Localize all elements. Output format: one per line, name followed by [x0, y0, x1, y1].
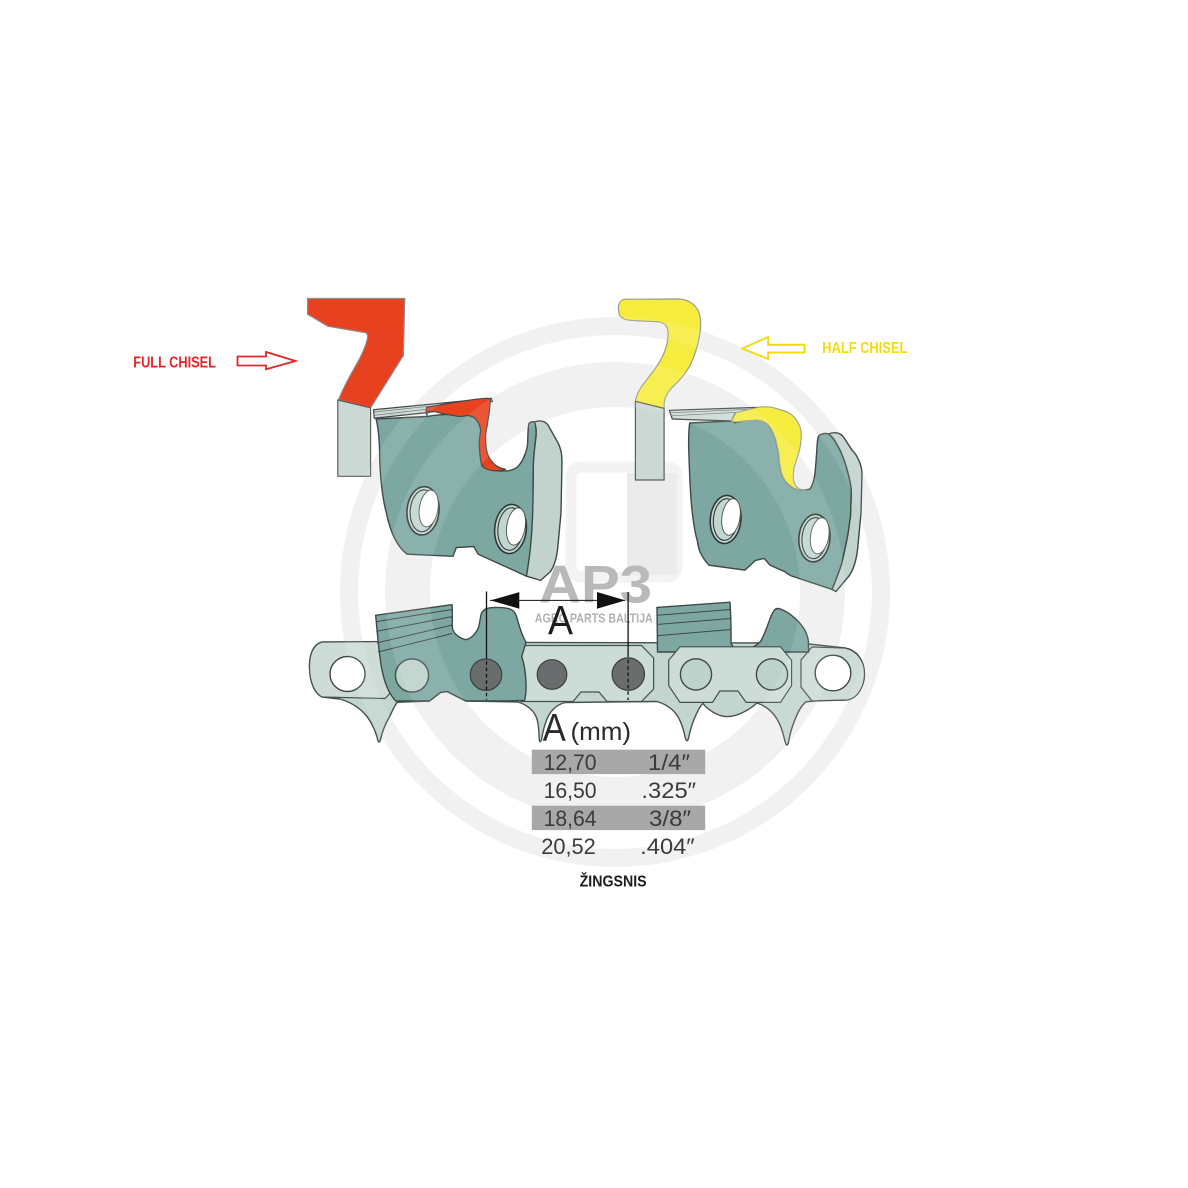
svg-text:20,52: 20,52 [541, 834, 596, 859]
svg-text:12,70: 12,70 [544, 750, 597, 775]
svg-text:1/4″: 1/4″ [648, 750, 690, 775]
svg-text:A: A [543, 707, 566, 750]
svg-text:A: A [548, 597, 574, 643]
svg-text:(mm): (mm) [571, 718, 632, 746]
svg-text:.404″: .404″ [640, 834, 695, 859]
svg-text:18,64: 18,64 [544, 806, 597, 831]
svg-text:16,50: 16,50 [544, 778, 597, 803]
svg-text:.325″: .325″ [641, 778, 696, 803]
svg-text:HALF CHISEL: HALF CHISEL [822, 340, 907, 357]
svg-text:3/8″: 3/8″ [649, 806, 691, 831]
svg-text:ŽINGSNIS: ŽINGSNIS [580, 872, 647, 891]
svg-text:FULL CHISEL: FULL CHISEL [133, 355, 216, 372]
